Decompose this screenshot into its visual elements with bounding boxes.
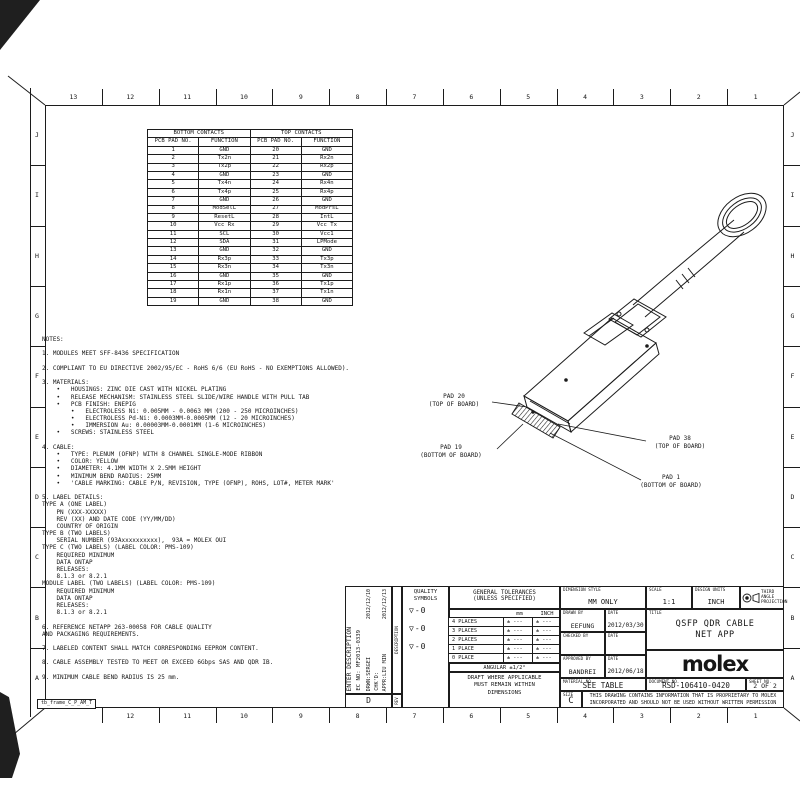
zone-row-label-right: A — [785, 648, 800, 708]
revision-letter-cell: D — [345, 694, 392, 708]
contacts-row: 2Tx2n21Rx2n — [148, 155, 353, 163]
pad-number: 31 — [250, 239, 301, 247]
tolerance-value: ± --- — [533, 654, 560, 663]
note-line: 2. COMPLIANT TO EU DIRECTIVE 2002/95/EC … — [42, 365, 349, 372]
pad-number: 6 — [148, 188, 199, 196]
approved-by-label: APPROVED BY — [563, 657, 591, 661]
revision-drwn: DRWN:SERGEI — [367, 657, 372, 691]
tolerance-value: ± --- — [504, 654, 533, 663]
drawn-by-label: DRAWN BY — [563, 611, 583, 615]
pad-function: GND — [199, 197, 250, 205]
zone-tick — [102, 708, 103, 723]
zone-row-label-right: J — [785, 105, 800, 165]
contacts-row: 15Rx3n34Tx3n — [148, 264, 353, 272]
revision-chkd: CHK'D: — [375, 672, 380, 691]
contacts-column-header: PCB PAD NO. — [250, 138, 301, 146]
contacts-column-header: FUNCTION — [301, 138, 352, 146]
note-line: • TYPE: PLENUM (OFNP) WITH 8 CHANNEL SIN… — [42, 451, 349, 458]
tolerance-value: ± --- — [533, 636, 560, 645]
tolerances-header-cell: GENERAL TOLERANCES (UNLESS SPECIFIED) — [449, 586, 560, 609]
quality-symbols-cell: QUALITY SYMBOLS ▽-0▽-0▽-0 — [402, 586, 449, 708]
zone-column-label: 9 — [272, 88, 329, 105]
zone-row-label-right: C — [785, 527, 800, 587]
pad-callout: PAD 38(TOP OF BOARD) — [634, 435, 726, 450]
zone-column-label: 12 — [102, 708, 159, 724]
pad-number: 37 — [250, 289, 301, 297]
tolerances-angular: ANGULAR ±1/2° — [483, 665, 525, 671]
pad-number: 26 — [250, 197, 301, 205]
draft-note-cell: DRAFT WHERE APPLICABLE MUST REMAIN WITHI… — [449, 672, 560, 708]
pad-function: GND — [199, 247, 250, 255]
logo-cell: molex — [646, 650, 784, 678]
sheet-cell: SHEET NO. 2 OF 2 — [746, 678, 784, 691]
zone-tick — [159, 89, 160, 105]
approved-by-cell: APPROVED BY BANDREI — [560, 655, 605, 678]
zone-tick — [784, 226, 800, 227]
pad-number: 7 — [148, 197, 199, 205]
pad-number: 28 — [250, 213, 301, 221]
molex-logo: molex — [647, 651, 783, 677]
note-line: DATA ONTAP — [42, 595, 349, 602]
note-line: AND PACKAGING REQUIREMENTS. — [42, 631, 349, 638]
contacts-row: 16GND35GND — [148, 272, 353, 280]
note-line — [42, 652, 349, 659]
pad-number: 32 — [250, 247, 301, 255]
document-number: RSD-106410-0420 — [647, 682, 745, 690]
pad-number: 9 — [148, 213, 199, 221]
contacts-row: 4GND23GND — [148, 171, 353, 179]
revision-description: ENTER DESCRIPTION — [347, 627, 353, 691]
zone-tick — [386, 708, 387, 723]
zone-tick — [102, 89, 103, 105]
tolerance-row: 1 PLACE± ---± --- — [449, 645, 560, 654]
pad-function: Tx3n — [301, 264, 352, 272]
pad-function: GND — [301, 297, 352, 305]
note-line: • IMMERSION Au: 0.00003MM-0.0001MM (1-6 … — [42, 422, 349, 429]
contacts-group-header: BOTTOM CONTACTS — [148, 130, 251, 138]
proprietary-note: THIS DRAWING CONTAINS INFORMATION THAT I… — [583, 692, 783, 708]
zone-tick — [30, 286, 45, 287]
pad-function: ResetL — [199, 213, 250, 221]
quality-symbol: ▽-0 — [403, 638, 448, 656]
zone-row-label-left: J — [29, 105, 45, 165]
pad-function: GND — [301, 146, 352, 154]
note-line — [42, 372, 349, 379]
document-cell: DOCUMENT NO. RSD-106410-0420 — [646, 678, 746, 691]
pad-function: Rx1n — [199, 289, 250, 297]
pad-function: Vcc1 — [301, 230, 352, 238]
pad-number: 27 — [250, 205, 301, 213]
zone-tick — [613, 708, 614, 723]
pad-number: 33 — [250, 255, 301, 263]
pad-function: GND — [301, 171, 352, 179]
note-line — [42, 343, 349, 350]
pad-number: 30 — [250, 230, 301, 238]
quality-symbol: ▽-0 — [403, 602, 448, 620]
zone-row-label-left: I — [29, 165, 45, 225]
contacts-row: 10Vcc Rx29Vcc Tx — [148, 222, 353, 230]
zone-column-label: 5 — [500, 708, 557, 724]
design-units-cell: DESIGN UNITS INCH — [692, 586, 740, 609]
revision-block: ENTER DESCRIPTION EC NO: MF2013-0339 DRW… — [345, 586, 392, 694]
tolerance-value: ± --- — [504, 645, 533, 654]
zone-tick — [784, 587, 800, 588]
note-line: 9. MINIMUM CABLE BEND RADIUS IS 25 mm. — [42, 674, 349, 681]
material-value: SEE TABLE — [561, 682, 645, 690]
note-line: 8. CABLE ASSEMBLY TESTED TO MEET OR EXCE… — [42, 659, 349, 666]
tolerances-header-2: (UNLESS SPECIFIED) — [450, 596, 559, 602]
zone-tick — [159, 708, 160, 723]
zone-tick — [272, 708, 273, 723]
quality-symbols-header: QUALITY SYMBOLS — [406, 587, 446, 602]
third-angle-projection-icon — [742, 592, 760, 604]
zone-column-label: 6 — [443, 88, 500, 105]
zone-column-label: 11 — [159, 88, 216, 105]
tolerances-header-1: GENERAL TOLERANCES — [450, 587, 559, 596]
pad-function: Rx4n — [301, 180, 352, 188]
contacts-row: 6Tx4p25Rx4p — [148, 188, 353, 196]
contacts-column-header: PCB PAD NO. — [148, 138, 199, 146]
pad-number: 8 — [148, 205, 199, 213]
zone-tick — [784, 286, 800, 287]
pad-number: 22 — [250, 163, 301, 171]
zone-tick — [329, 89, 330, 105]
pad-function: Tx2p — [199, 163, 250, 171]
quality-symbol: ▽-0 — [403, 620, 448, 638]
zone-row-label-right: F — [785, 346, 800, 406]
zone-tick — [670, 708, 671, 723]
zone-row-label-right: E — [785, 407, 800, 467]
zone-column-label: 4 — [557, 88, 614, 105]
pad-function: Tx1n — [301, 289, 352, 297]
zone-column-label: 10 — [216, 88, 273, 105]
pad-contacts-table: BOTTOM CONTACTSTOP CONTACTSPCB PAD NO.FU… — [147, 129, 353, 306]
frame-name-label: tb_frame_C_P_AM_T — [37, 699, 96, 709]
pad-function: Vcc Rx — [199, 222, 250, 230]
pad-function: Rx3n — [199, 264, 250, 272]
tolerance-places-label: 4 PLACES — [449, 618, 504, 627]
drawing-title-line1: QSFP QDR CABLE — [647, 619, 783, 630]
zone-column-label: 7 — [386, 88, 443, 105]
note-line: TYPE C (TWO LABELS) (LABEL COLOR: PMS-10… — [42, 544, 349, 551]
zone-column-label: 3 — [613, 708, 670, 724]
drawing-title-line2: NET APP — [647, 630, 783, 641]
tolerance-value: ± --- — [504, 636, 533, 645]
drawn-by-value: EEFUNG — [561, 623, 604, 630]
zone-column-label: 8 — [329, 88, 386, 105]
pad-callout: PAD 19(BOTTOM OF BOARD) — [403, 444, 499, 459]
zone-column-label: 2 — [670, 708, 727, 724]
contacts-row: 11SCL30Vcc1 — [148, 230, 353, 238]
zone-column-label: 4 — [557, 708, 614, 724]
zone-tick — [557, 89, 558, 105]
pad-function: LPMode — [301, 239, 352, 247]
zone-column-label: 9 — [272, 708, 329, 724]
pad-number: 16 — [148, 272, 199, 280]
zone-tick — [727, 89, 728, 105]
note-line: RELEASES: — [42, 602, 349, 609]
note-line: 1. MODULES MEET SFF-8436 SPECIFICATION — [42, 350, 349, 357]
approved-date-cell: DATE 2012/06/18 — [605, 655, 646, 678]
contacts-row: 18Rx1n37Tx1n — [148, 289, 353, 297]
zone-tick — [216, 708, 217, 723]
zone-tick — [329, 708, 330, 723]
zone-column-label: 12 — [102, 88, 159, 105]
pad-function: Rx3p — [199, 255, 250, 263]
zone-column-label: 6 — [443, 708, 500, 724]
pad-function: Tx3p — [301, 255, 352, 263]
note-line: REQUIRED MINIMUM — [42, 588, 349, 595]
note-line — [42, 638, 349, 645]
checked-date-label: DATE — [608, 634, 618, 638]
proprietary-cell: THIS DRAWING CONTAINS INFORMATION THAT I… — [582, 691, 784, 708]
pad-function: GND — [301, 197, 352, 205]
pad-number: 35 — [250, 272, 301, 280]
title-label: TITLE — [649, 611, 662, 615]
notes-block: NOTES: 1. MODULES MEET SFF-8436 SPECIFIC… — [42, 336, 349, 681]
note-line — [42, 437, 349, 444]
pad-number: 3 — [148, 163, 199, 171]
pad-function: Tx2n — [199, 155, 250, 163]
zone-column-label: 1 — [727, 708, 784, 724]
zone-column-label: 10 — [216, 708, 273, 724]
pad-callout-location: (BOTTOM OF BOARD) — [403, 452, 499, 460]
note-line: • MINIMUM BEND RADIUS: 25MM — [42, 473, 349, 480]
note-line: REV (XX) AND DATE CODE (YY/MM/DD) — [42, 516, 349, 523]
zone-tick — [613, 89, 614, 105]
zone-tick — [500, 89, 501, 105]
note-line — [42, 358, 349, 365]
revision-date-2: 2012/12/13 — [383, 589, 388, 619]
note-line: COUNTRY OF ORIGIN — [42, 523, 349, 530]
scale-label: SCALE — [649, 588, 662, 592]
tolerance-row: 0 PLACE± ---± --- — [449, 654, 560, 663]
contacts-row: 13GND32GND — [148, 247, 353, 255]
zone-tick — [784, 467, 800, 468]
zone-row-label-right: I — [785, 165, 800, 225]
pad-number: 29 — [250, 222, 301, 230]
pad-number: 34 — [250, 264, 301, 272]
contacts-row: 3Tx2p22Rx2p — [148, 163, 353, 171]
contacts-row: 12SDA31LPMode — [148, 239, 353, 247]
quality-symbols-list: ▽-0▽-0▽-0 — [403, 602, 448, 656]
zone-tick — [784, 527, 800, 528]
design-units-value: INCH — [693, 599, 739, 606]
note-line: DATA ONTAP — [42, 559, 349, 566]
contacts-row: 8ModSelL27ModPrsL — [148, 205, 353, 213]
pad-number: 24 — [250, 180, 301, 188]
pad-number: 25 — [250, 188, 301, 196]
zone-row-label-right: G — [785, 286, 800, 346]
tolerances-col-inch: INCH — [534, 610, 560, 618]
pad-function: GND — [199, 146, 250, 154]
pad-function: Rx2p — [301, 163, 352, 171]
note-line: • ELECTROLESS Ni: 0.005MM - 0.0063 MM (2… — [42, 408, 349, 415]
zone-column-label: 7 — [386, 708, 443, 724]
tolerance-places-label: 1 PLACE — [449, 645, 504, 654]
note-line: • RELEASE MECHANISM: STAINLESS STEEL SLI… — [42, 394, 349, 401]
drawn-date-cell: DATE 2012/03/30 — [605, 609, 646, 632]
pad-number: 17 — [148, 281, 199, 289]
note-line: 3. MATERIALS: — [42, 379, 349, 386]
pad-function: Vcc Tx — [301, 222, 352, 230]
tolerance-value: ± --- — [533, 618, 560, 627]
zone-tick — [784, 407, 800, 408]
drawn-date-label: DATE — [608, 611, 618, 615]
pad-number: 1 — [148, 146, 199, 154]
revision-appr: APPR:LIU MIN — [383, 654, 388, 691]
pad-function: GND — [199, 171, 250, 179]
tolerances-col-mm: mm — [505, 610, 534, 618]
pad-callout-name: PAD 1 — [622, 474, 720, 482]
zone-tick — [557, 708, 558, 723]
pad-function: IntL — [301, 213, 352, 221]
contacts-row: 19GND38GND — [148, 297, 353, 305]
note-line: 5. LABEL DETAILS: — [42, 494, 349, 501]
note-line: • ELECTROLESS Pd-Ni: 0.0003MM-0.0005MM (… — [42, 415, 349, 422]
tolerance-places-label: 0 PLACE — [449, 654, 504, 663]
note-line: TYPE B (TWO LABELS) — [42, 530, 349, 537]
pad-function: GND — [301, 247, 352, 255]
drawn-by-cell: DRAWN BY EEFUNG — [560, 609, 605, 632]
approved-date-label: DATE — [608, 657, 618, 661]
revision-date-1: 2012/12/10 — [367, 589, 372, 619]
tolerance-value: ± --- — [533, 627, 560, 636]
zone-tick — [443, 708, 444, 723]
pad-function: Tx1p — [301, 281, 352, 289]
dimension-style-label: DIMENSION STYLE — [563, 588, 601, 592]
pad-callout-name: PAD 19 — [403, 444, 499, 452]
contacts-row: 14Rx3p33Tx3p — [148, 255, 353, 263]
pad-function: Tx4n — [199, 180, 250, 188]
title-cell: TITLE QSFP QDR CABLE NET APP — [646, 609, 784, 650]
zone-tick — [784, 165, 800, 166]
note-line: MODULE LABEL (TWO LABELS) (LABEL COLOR: … — [42, 580, 349, 587]
tolerances-angular-row: ANGULAR ±1/2° — [449, 663, 560, 672]
pad-number: 5 — [148, 180, 199, 188]
drawn-date-value: 2012/03/30 — [606, 623, 645, 629]
zone-column-label: 5 — [500, 88, 557, 105]
note-line: REQUIRED MINIMUM — [42, 552, 349, 559]
pad-function: GND — [199, 297, 250, 305]
contacts-row: 17Rx1p36Tx1p — [148, 281, 353, 289]
zone-tick — [216, 89, 217, 105]
draft-note: DRAFT WHERE APPLICABLE MUST REMAIN WITHI… — [460, 675, 550, 697]
pad-number: 36 — [250, 281, 301, 289]
pad-number: 14 — [148, 255, 199, 263]
zone-tick — [272, 89, 273, 105]
pad-number: 2 — [148, 155, 199, 163]
pad-number: 10 — [148, 222, 199, 230]
note-line: • DIAMETER: 4.1MM WIDTH X 2.5MM HEIGHT — [42, 465, 349, 472]
contacts-column-header: FUNCTION — [199, 138, 250, 146]
pad-callout-location: (TOP OF BOARD) — [634, 443, 726, 451]
revision-letter: D — [366, 696, 371, 705]
pad-number: 11 — [148, 230, 199, 238]
pad-callout-location: (TOP OF BOARD) — [413, 401, 495, 409]
note-line: • HOUSINGS: ZINC DIE CAST WITH NICKEL PL… — [42, 386, 349, 393]
pad-number: 15 — [148, 264, 199, 272]
zone-tick — [784, 648, 800, 649]
contacts-group-header: TOP CONTACTS — [250, 130, 353, 138]
checked-by-label: CHECKED BY — [563, 634, 588, 638]
tolerance-row: 3 PLACES± ---± --- — [449, 627, 560, 636]
tolerances-unit-row: mm INCH — [449, 609, 560, 618]
tolerance-value: ± --- — [504, 627, 533, 636]
note-line: • SCREWS: STAINLESS STEEL — [42, 429, 349, 436]
zone-column-label: 3 — [613, 88, 670, 105]
pad-number: 12 — [148, 239, 199, 247]
zone-column-label: 11 — [159, 708, 216, 724]
pad-function: SCL — [199, 230, 250, 238]
note-line: 8.1.3 or 8.2.1 — [42, 573, 349, 580]
zone-tick — [784, 346, 800, 347]
pad-callout-name: PAD 20 — [413, 393, 495, 401]
tolerance-value: ± --- — [504, 618, 533, 627]
projection-cell: THIRD ANGLE PROJECTION — [740, 586, 784, 609]
note-line: TYPE A (ONE LABEL) — [42, 501, 349, 508]
drawing-sheet: 13121110987654321121110987654321JJIIHHGG… — [0, 0, 800, 800]
pad-number: 13 — [148, 247, 199, 255]
pad-number: 18 — [148, 289, 199, 297]
zone-column-label: 8 — [329, 708, 386, 724]
revision-description-strip: DESCRIPTION — [392, 586, 402, 694]
zone-row-label-right: D — [785, 467, 800, 527]
note-line — [42, 487, 349, 494]
tolerance-value: ± --- — [533, 645, 560, 654]
size-value: C — [561, 697, 581, 706]
note-line: SERIAL NUMBER (93Axxxxxxxxxx), 93A = MOL… — [42, 537, 349, 544]
zone-tick — [500, 708, 501, 723]
note-line — [42, 616, 349, 623]
size-cell: SIZE C — [560, 691, 582, 708]
tolerance-row: 4 PLACES± ---± --- — [449, 618, 560, 627]
zone-column-label: 2 — [670, 88, 727, 105]
scale-cell: SCALE 1:1 — [646, 586, 692, 609]
tolerance-places-label: 3 PLACES — [449, 627, 504, 636]
pad-number: 19 — [148, 297, 199, 305]
note-line: NOTES: — [42, 336, 349, 343]
note-line: 7. LABELED CONTENT SHALL MATCH CORRESPON… — [42, 645, 349, 652]
pad-function: Rx2n — [301, 155, 352, 163]
note-line: • 'CABLE MARKING: CABLE P/N, REVISION, T… — [42, 480, 349, 487]
projection-text-1: THIRD ANGLE — [761, 590, 787, 600]
note-line: • COLOR: YELLOW — [42, 458, 349, 465]
tolerance-row: 2 PLACES± ---± --- — [449, 636, 560, 645]
pad-function: GND — [301, 272, 352, 280]
pad-callout-location: (BOTTOM OF BOARD) — [622, 482, 720, 490]
pad-function: SDA — [199, 239, 250, 247]
pad-function: ModSelL — [199, 205, 250, 213]
rev-strip-label: REV — [395, 697, 399, 704]
approved-by-value: BANDREI — [561, 669, 604, 676]
note-line: • PCB FINISH: ENEPIG — [42, 401, 349, 408]
note-line: 6. REFERENCE NETAPP 263-00058 FOR CABLE … — [42, 624, 349, 631]
pad-function: Rx1p — [199, 281, 250, 289]
checked-by-cell: CHECKED BY — [560, 632, 605, 655]
pad-number: 20 — [250, 146, 301, 154]
contacts-row: 7GND26GND — [148, 197, 353, 205]
note-line: RELEASES: — [42, 566, 349, 573]
zone-tick — [386, 89, 387, 105]
design-units-label: DESIGN UNITS — [695, 588, 725, 592]
zone-tick — [727, 708, 728, 723]
note-line: 4. CABLE: — [42, 444, 349, 451]
zone-column-label: 13 — [45, 88, 102, 105]
revision-rev-strip: REV — [392, 694, 402, 708]
contacts-row: 5Tx4n24Rx4n — [148, 180, 353, 188]
zone-tick — [30, 226, 45, 227]
